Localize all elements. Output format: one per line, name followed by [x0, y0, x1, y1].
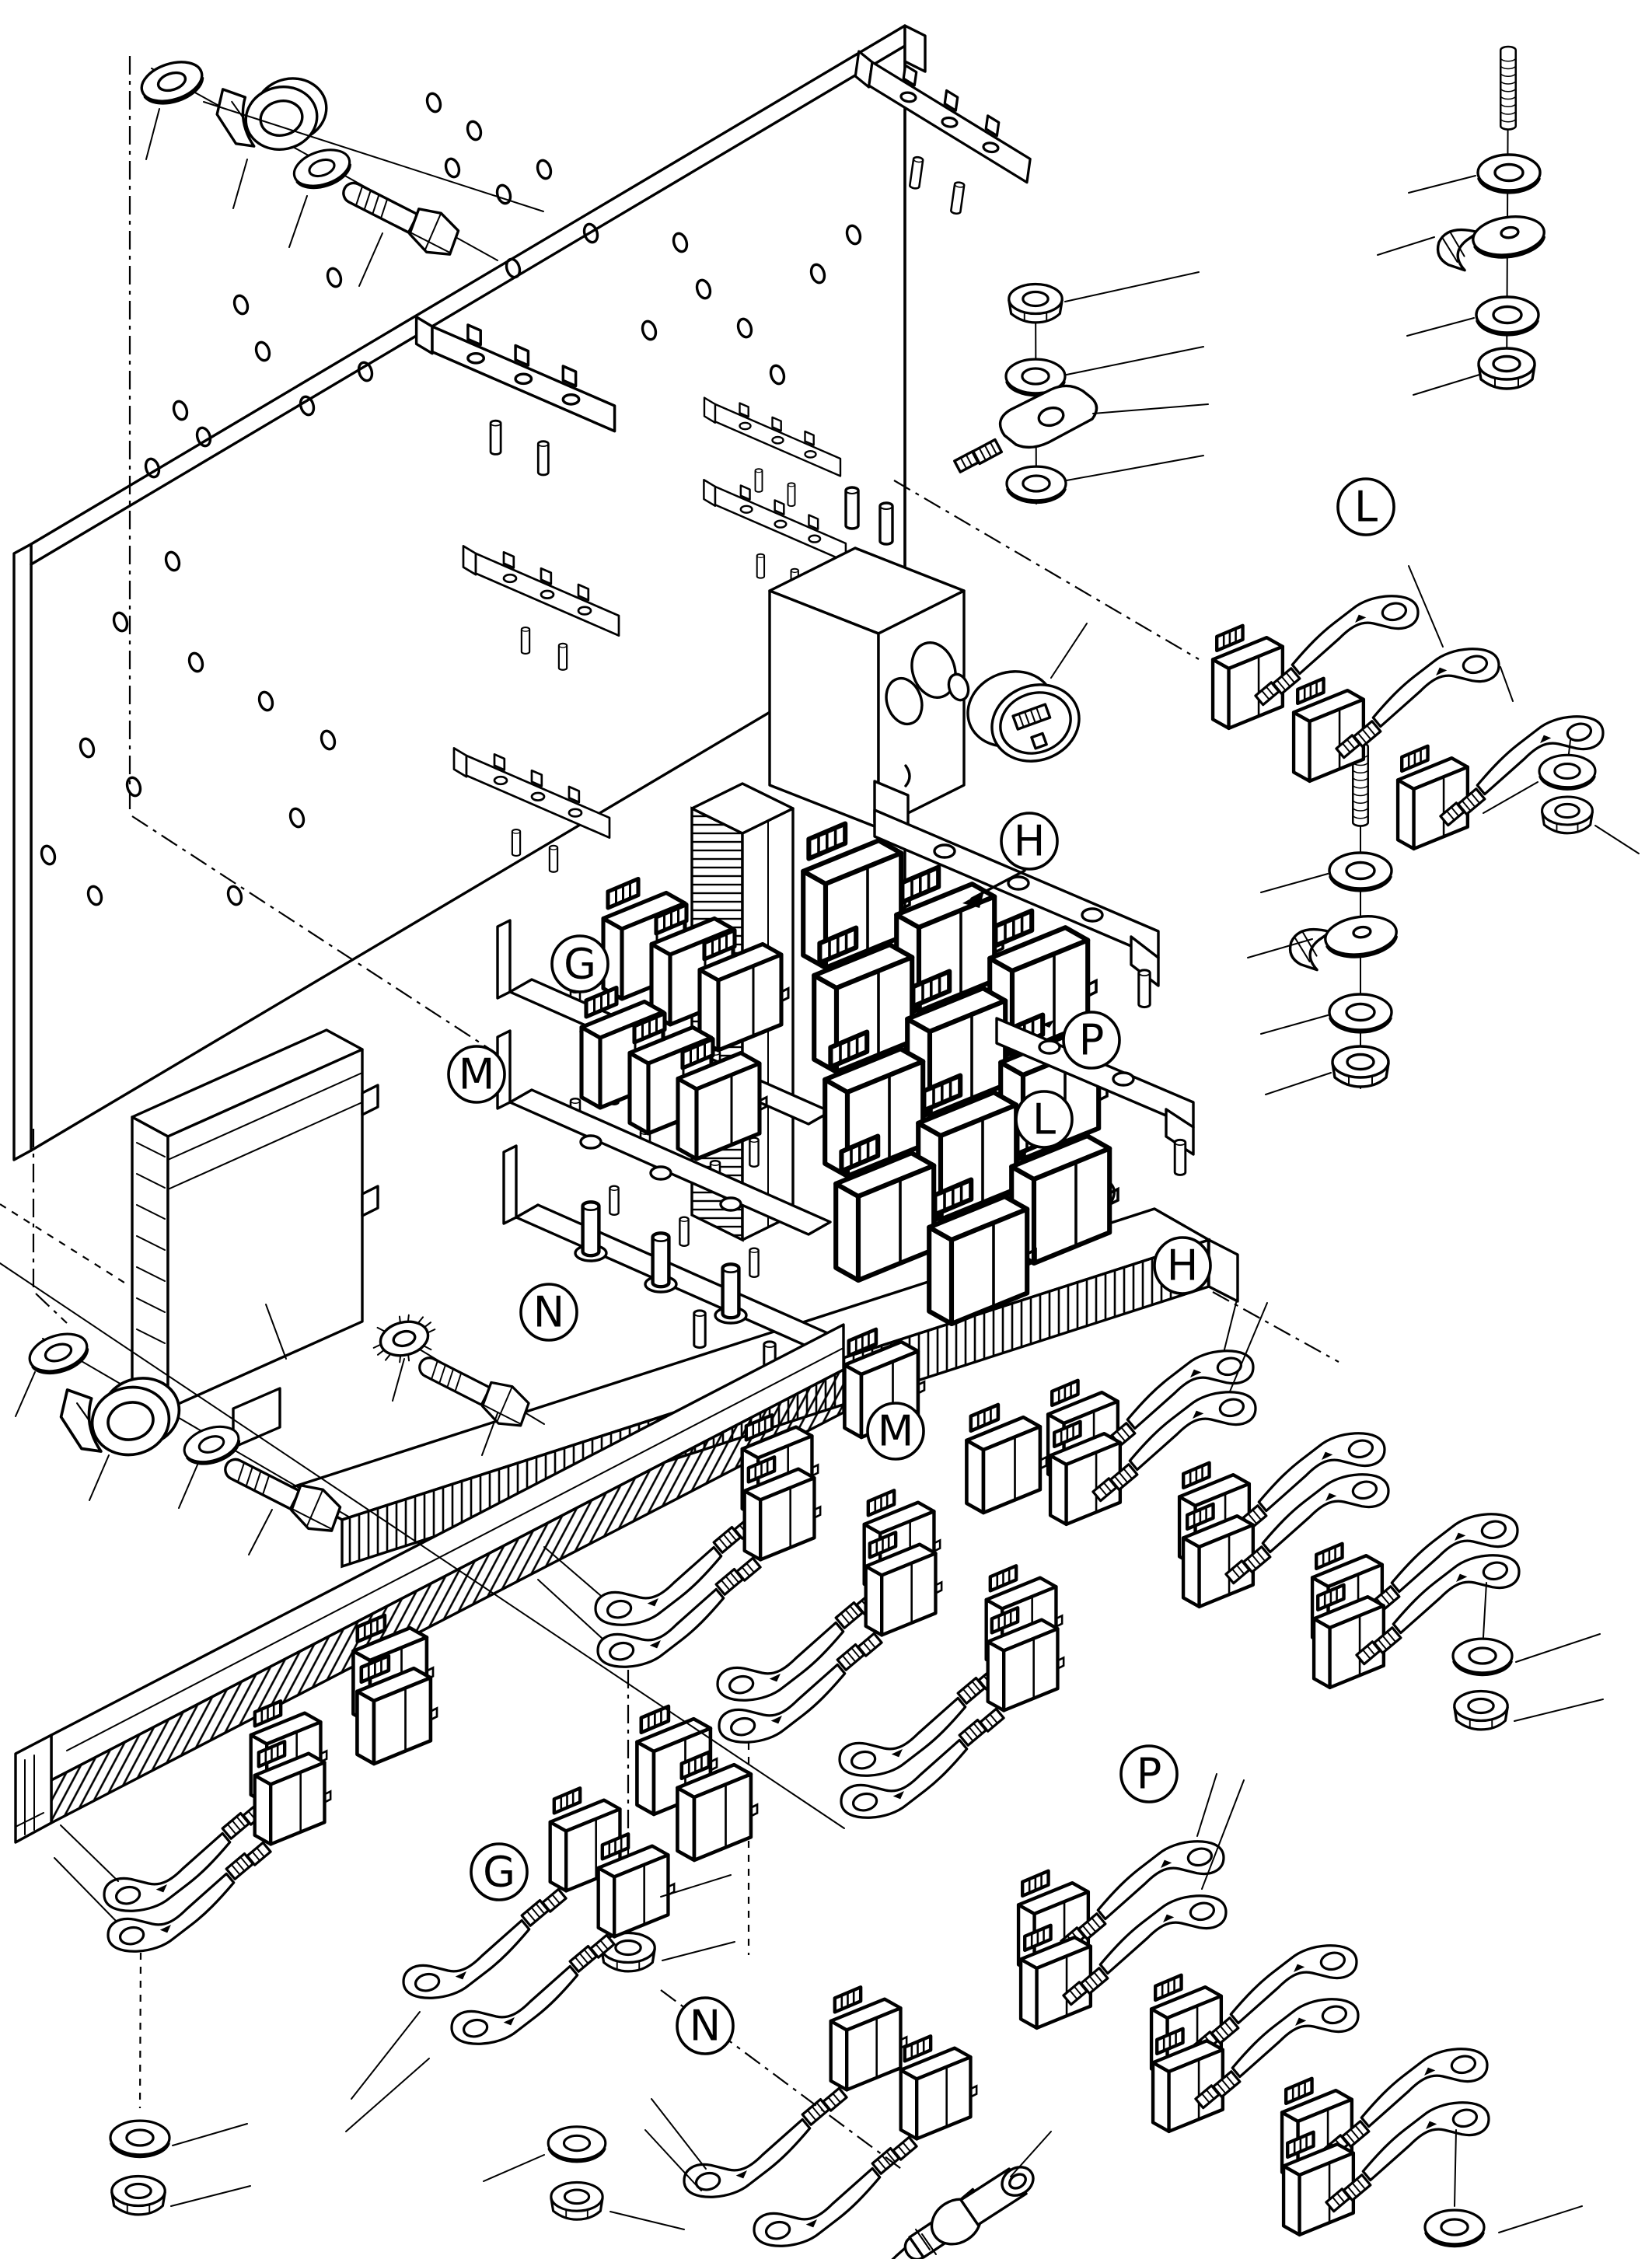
svg-text:H: H: [1167, 1241, 1199, 1290]
callout-M: M: [449, 1046, 505, 1102]
callout-M: M: [868, 1403, 924, 1459]
callout-N: N: [521, 1284, 577, 1340]
callout-P: P: [1063, 1012, 1119, 1068]
callout-L: L: [1338, 479, 1394, 535]
callout-H: H: [1001, 813, 1057, 869]
svg-text:G: G: [564, 940, 596, 989]
callout-G: G: [552, 936, 608, 992]
exploded-diagram-canvas: LHGMPLNHMPGN: [0, 0, 1652, 2259]
svg-text:M: M: [459, 1050, 495, 1099]
callout-L: L: [1016, 1091, 1072, 1147]
svg-text:M: M: [878, 1407, 914, 1456]
callout-P: P: [1121, 1746, 1177, 1802]
diagram-page: LHGMPLNHMPGN: [0, 0, 1652, 2259]
svg-text:G: G: [483, 1848, 515, 1897]
svg-text:N: N: [533, 1288, 564, 1337]
callout-G: G: [471, 1844, 527, 1900]
svg-text:L: L: [1354, 483, 1378, 532]
svg-text:P: P: [1137, 1750, 1162, 1799]
svg-text:N: N: [690, 2002, 721, 2051]
svg-text:L: L: [1032, 1095, 1056, 1144]
svg-text:P: P: [1079, 1016, 1105, 1065]
svg-text:H: H: [1014, 817, 1046, 866]
callout-N: N: [677, 1998, 733, 2054]
callout-H: H: [1154, 1238, 1210, 1294]
